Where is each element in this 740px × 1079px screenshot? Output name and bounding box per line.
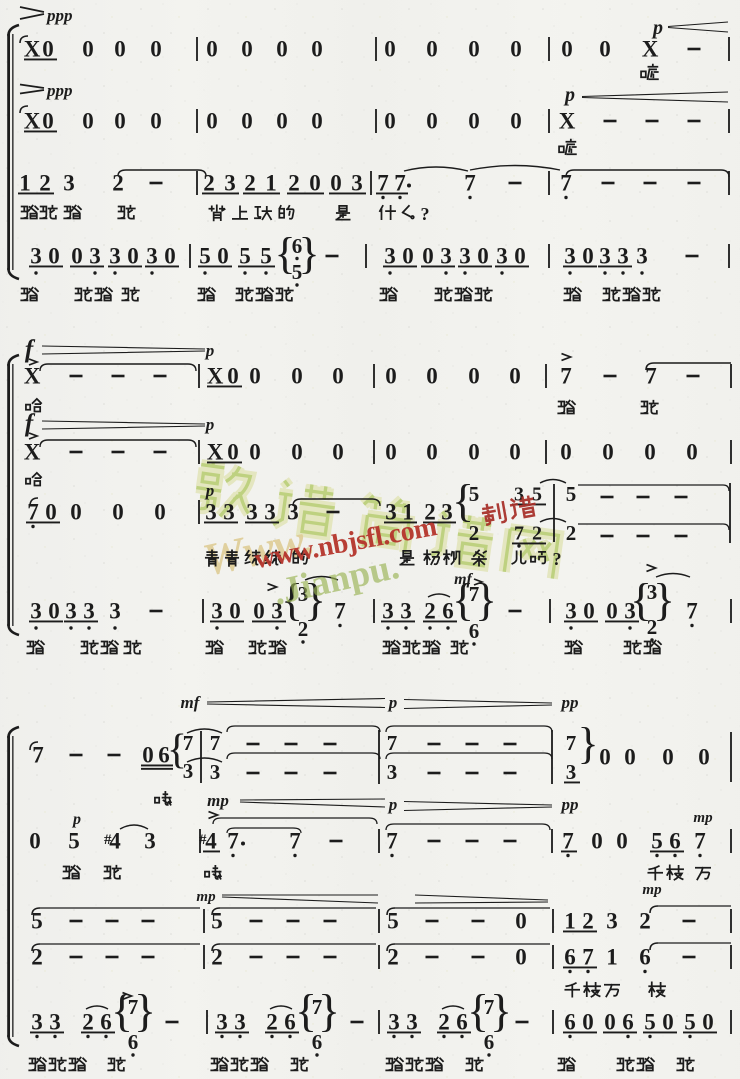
svg-text:0: 0 [276,37,288,62]
svg-text:0: 0 [582,1010,594,1035]
svg-text:3: 3 [264,500,276,525]
svg-text:3: 3 [224,171,236,196]
svg-text:}: } [653,574,675,625]
svg-text:0: 0 [591,829,603,854]
svg-text:0: 0 [426,364,438,389]
svg-text:0: 0 [560,440,572,465]
svg-text:0: 0 [624,745,636,770]
svg-text:X: X [642,37,659,62]
svg-text:0: 0 [249,440,261,465]
svg-text:mp: mp [642,882,662,898]
svg-text:0: 0 [384,109,396,134]
svg-text:0: 0 [468,109,480,134]
svg-text:3: 3 [565,599,577,624]
svg-text:3: 3 [65,599,77,624]
svg-text:7: 7 [560,364,572,389]
svg-text:?: ? [553,549,562,569]
svg-text:3: 3 [31,1010,43,1035]
svg-text:5: 5 [566,482,577,506]
svg-text:0: 0 [150,109,162,134]
svg-text:2: 2 [469,521,480,545]
svg-text:0: 0 [468,364,480,389]
svg-text:X: X [24,440,41,465]
svg-text:0: 0 [509,440,521,465]
svg-text:0: 0 [468,440,480,465]
svg-text:3: 3 [382,599,394,624]
svg-text:0: 0 [510,109,522,134]
svg-text:2: 2 [266,1010,278,1035]
svg-text:mp: mp [196,889,216,905]
svg-text:2: 2 [82,1010,94,1035]
svg-text:p: p [387,795,398,814]
svg-text:0: 0 [385,364,397,389]
svg-text:7: 7 [210,731,221,755]
svg-text:4: 4 [205,829,217,854]
svg-text:2: 2 [203,171,215,196]
svg-text:2: 2 [39,171,51,196]
svg-text:7: 7 [566,731,577,755]
svg-text:3: 3 [387,760,398,784]
svg-text:2: 2 [211,945,223,970]
svg-text:1: 1 [265,171,277,196]
svg-text:0: 0 [599,745,611,770]
svg-text:0: 0 [291,440,303,465]
svg-text:0: 0 [227,364,239,389]
svg-text:p: p [563,84,575,106]
svg-text:0: 0 [45,500,57,525]
svg-text:0: 0 [42,109,54,134]
svg-text:5: 5 [387,909,399,934]
svg-text:3: 3 [144,829,156,854]
svg-text:3: 3 [211,599,223,624]
svg-text:3: 3 [566,760,577,784]
svg-text:5: 5 [684,1010,696,1035]
svg-text:7: 7 [694,829,706,854]
svg-text:p: p [204,481,215,500]
svg-text:3: 3 [30,244,42,269]
svg-text:4: 4 [109,829,121,854]
svg-text:p: p [204,415,215,434]
svg-text:7: 7 [183,731,194,755]
svg-text:0: 0 [702,1010,714,1035]
svg-text:0: 0 [602,440,614,465]
svg-text:0: 0 [112,500,124,525]
svg-text:0: 0 [127,244,139,269]
svg-text:0: 0 [426,440,438,465]
svg-text:7: 7 [582,945,594,970]
svg-text:0: 0 [514,244,526,269]
svg-text:5: 5 [31,909,43,934]
svg-text:3: 3 [30,599,42,624]
svg-text:0: 0 [164,244,176,269]
svg-text:0: 0 [253,599,265,624]
svg-text:}: } [134,985,156,1036]
svg-text:3: 3 [617,244,629,269]
svg-text:5: 5 [211,909,223,934]
svg-text:7: 7 [562,829,574,854]
svg-text:0: 0 [48,599,60,624]
svg-text:pp: pp [560,795,579,814]
svg-text:0: 0 [662,1010,674,1035]
svg-text:?: ? [421,204,430,224]
svg-text:pp: pp [560,693,579,712]
svg-text:7: 7 [334,599,346,624]
svg-text:2: 2 [532,523,542,545]
svg-text:0: 0 [154,500,166,525]
svg-text:0: 0 [686,440,698,465]
svg-text:0: 0 [384,37,396,62]
svg-text:7: 7 [32,743,44,768]
svg-text:0: 0 [599,37,611,62]
svg-text:5: 5 [260,244,272,269]
svg-text:0: 0 [71,244,83,269]
svg-text:0: 0 [606,599,618,624]
svg-text:0: 0 [114,109,126,134]
svg-text:p: p [387,693,398,712]
svg-text:0: 0 [229,599,241,624]
svg-text:}: } [577,719,598,768]
svg-text:}: } [490,985,512,1036]
svg-text:7: 7 [686,599,698,624]
svg-text:2: 2 [566,521,577,545]
svg-text:6: 6 [622,1010,634,1035]
svg-text:2: 2 [244,171,256,196]
svg-text:0: 0 [206,109,218,134]
svg-text:X: X [24,37,41,62]
svg-text:0: 0 [217,244,229,269]
svg-text:3: 3 [183,759,194,783]
svg-text:mp: mp [207,791,229,810]
svg-text:0: 0 [515,909,527,934]
svg-text:0: 0 [662,745,674,770]
svg-text:6: 6 [564,1010,576,1035]
svg-text:3: 3 [351,171,363,196]
svg-text:1: 1 [606,945,618,970]
svg-text:7: 7 [394,171,406,196]
svg-text:7: 7 [387,731,398,755]
svg-text:2: 2 [582,909,594,934]
svg-text:0: 0 [422,244,434,269]
svg-text:5: 5 [239,244,251,269]
svg-text:3: 3 [234,1010,246,1035]
svg-text:p: p [204,341,215,360]
svg-text:3: 3 [384,244,396,269]
svg-text:X: X [207,440,224,465]
svg-text:3: 3 [109,599,121,624]
svg-text:3: 3 [205,500,217,525]
svg-text:3: 3 [564,244,576,269]
svg-text:3: 3 [400,599,412,624]
svg-text:0: 0 [477,244,489,269]
svg-text:X: X [207,364,224,389]
svg-text:3: 3 [636,244,648,269]
svg-text:6: 6 [669,829,681,854]
svg-text:3: 3 [459,244,471,269]
svg-text:0: 0 [583,599,595,624]
svg-text:6: 6 [564,945,576,970]
svg-text:2: 2 [424,599,436,624]
svg-text:5: 5 [651,829,663,854]
svg-text:0: 0 [276,109,288,134]
svg-text:}: } [475,574,497,625]
svg-text:0: 0 [332,364,344,389]
svg-text:0: 0 [510,37,522,62]
svg-text:2: 2 [387,945,399,970]
svg-text:3: 3 [83,599,95,624]
svg-text:0: 0 [509,364,521,389]
svg-text:0: 0 [150,37,162,62]
svg-text:3: 3 [440,244,452,269]
svg-text:0: 0 [644,440,656,465]
svg-text:3: 3 [89,244,101,269]
svg-text:0: 0 [311,37,323,62]
svg-text:ppp: ppp [45,81,73,100]
svg-text:0: 0 [604,1010,616,1035]
svg-text:0: 0 [426,37,438,62]
svg-text:3: 3 [406,1010,418,1035]
svg-text:0: 0 [114,37,126,62]
svg-text:ppp: ppp [45,6,73,25]
svg-text:0: 0 [402,244,414,269]
svg-text:7: 7 [386,829,398,854]
svg-text:3: 3 [496,244,508,269]
svg-text:0: 0 [82,37,94,62]
svg-text:0: 0 [582,244,594,269]
svg-text:5: 5 [199,244,211,269]
svg-text:2: 2 [31,945,43,970]
svg-text:X: X [559,109,576,134]
svg-text:X: X [24,109,41,134]
svg-text:7: 7 [289,829,301,854]
svg-text:3: 3 [49,1010,61,1035]
svg-text:0: 0 [206,37,218,62]
svg-text:3: 3 [216,1010,228,1035]
svg-text:0: 0 [698,745,710,770]
svg-text:0: 0 [515,945,527,970]
svg-text:3: 3 [146,244,158,269]
svg-text:}: } [318,985,340,1036]
svg-text:0: 0 [142,743,154,768]
svg-text:2: 2 [288,171,300,196]
svg-text:3: 3 [246,500,258,525]
svg-text:3: 3 [63,171,75,196]
svg-text:3: 3 [599,244,611,269]
svg-text:7: 7 [227,829,239,854]
svg-text:5: 5 [469,482,480,506]
svg-text:0: 0 [309,171,321,196]
svg-text:0: 0 [332,440,344,465]
svg-text:5: 5 [68,829,80,854]
svg-text:0: 0 [385,440,397,465]
svg-text:3: 3 [223,500,235,525]
svg-text:7: 7 [464,171,476,196]
svg-text:0: 0 [291,364,303,389]
svg-text:0: 0 [468,37,480,62]
svg-text:p: p [651,17,663,39]
svg-text:p: p [71,811,81,828]
svg-text:1: 1 [564,909,576,934]
svg-text:0: 0 [227,440,239,465]
svg-text:0: 0 [616,829,628,854]
svg-text:3: 3 [606,909,618,934]
svg-text:1: 1 [19,171,31,196]
svg-text:2: 2 [639,909,651,934]
svg-text:0: 0 [426,109,438,134]
svg-text:}: } [298,229,319,278]
svg-text:mp: mp [693,810,713,826]
svg-text:0: 0 [42,37,54,62]
svg-text:6: 6 [639,945,651,970]
svg-text:mf: mf [181,693,202,712]
svg-text:0: 0 [249,364,261,389]
svg-text:3: 3 [210,760,221,784]
svg-text:2: 2 [438,1010,450,1035]
svg-text:0: 0 [311,109,323,134]
svg-text:0: 0 [241,109,253,134]
svg-text:7: 7 [514,523,524,545]
svg-text:7: 7 [27,500,39,525]
svg-text:0: 0 [82,109,94,134]
svg-text:0: 0 [70,500,82,525]
svg-text:0: 0 [48,244,60,269]
svg-text:3: 3 [388,1010,400,1035]
svg-text:5: 5 [644,1010,656,1035]
svg-text:5: 5 [532,484,542,506]
svg-text:X: X [24,364,41,389]
svg-text:3: 3 [109,244,121,269]
svg-text:0: 0 [330,171,342,196]
svg-text:0: 0 [29,829,41,854]
svg-text:7: 7 [377,171,389,196]
svg-text:0: 0 [241,37,253,62]
svg-text:0: 0 [561,37,573,62]
